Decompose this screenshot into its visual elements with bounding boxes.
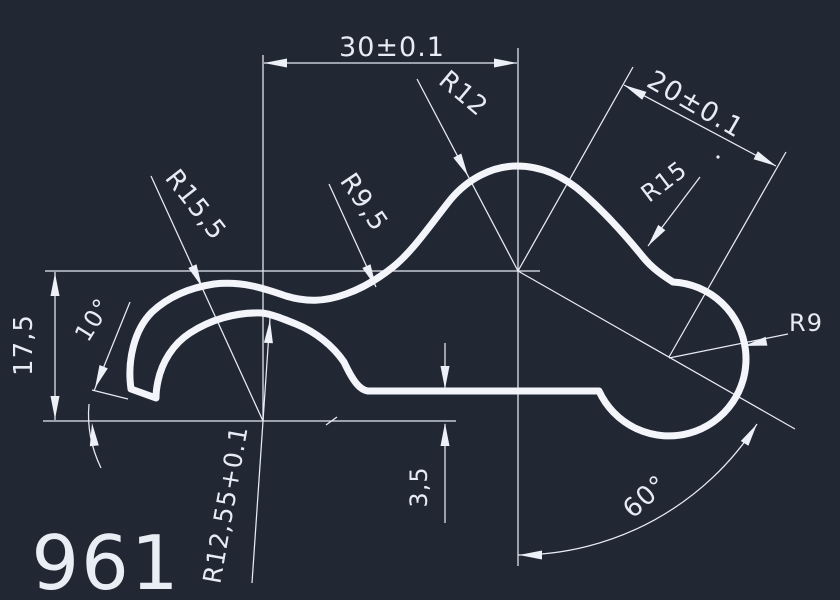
point-marker bbox=[716, 155, 719, 158]
part-number: 961 bbox=[31, 519, 180, 600]
cad-viewport[interactable]: 30±0.1 20±0.1 17,5 3,5 10° 60° R15,5 R9,… bbox=[0, 0, 840, 600]
dim-30-label: 30±0.1 bbox=[339, 32, 445, 63]
cad-drawing: 30±0.1 20±0.1 17,5 3,5 10° 60° R15,5 R9,… bbox=[0, 0, 840, 600]
radius-r9-label: R9 bbox=[789, 309, 823, 337]
dim-35-label: 3,5 bbox=[405, 466, 433, 507]
dim-17-label: 17,5 bbox=[9, 314, 39, 376]
